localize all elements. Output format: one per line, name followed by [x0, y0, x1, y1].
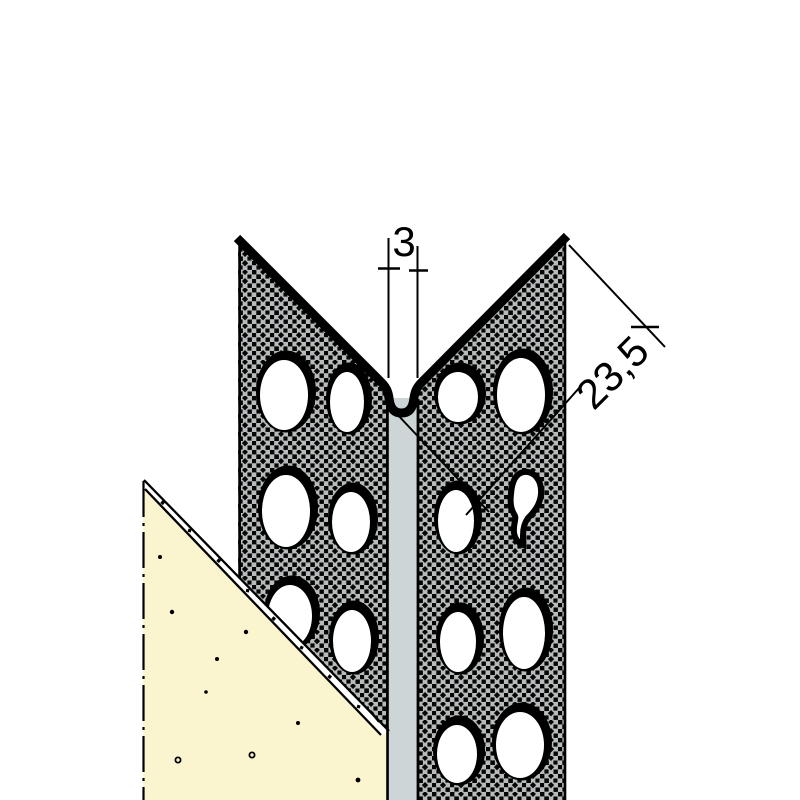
center-bead-strip — [386, 394, 419, 800]
profile-cross-section-svg: 3 23,5 — [0, 0, 800, 800]
bead-strip-fill — [386, 394, 419, 800]
gap-width-label: 3 — [392, 218, 415, 265]
corner-bead-technical-drawing: 3 23,5 — [0, 0, 800, 800]
